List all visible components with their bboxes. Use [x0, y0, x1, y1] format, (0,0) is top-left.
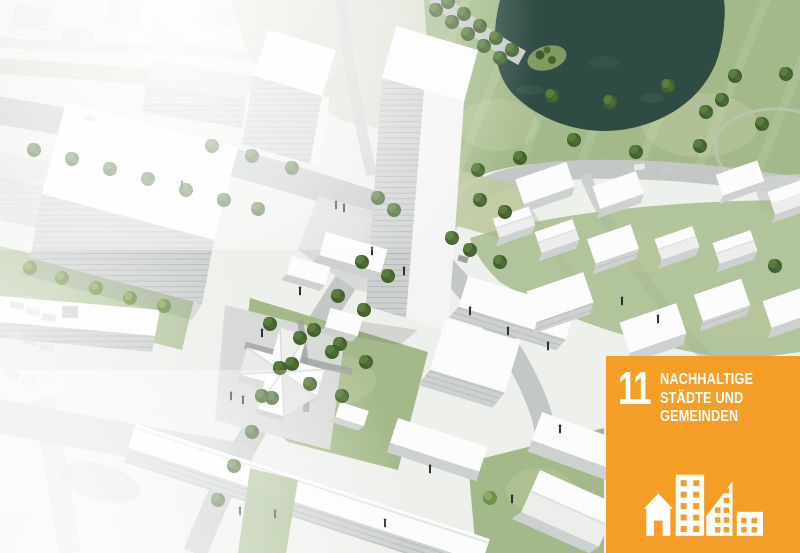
- sdg-goal-number: 11: [618, 368, 650, 408]
- sdg-title-line: GEMEINDEN: [660, 408, 753, 427]
- sdg-title-line: NACHHALTIGE: [660, 371, 753, 390]
- low-building-icon: [737, 512, 763, 536]
- house-icon: [644, 493, 672, 508]
- sdg11-badge-header: 11 NACHHALTIGE STÄDTE UND GEMEINDEN: [606, 356, 800, 427]
- sdg11-badge: 11 NACHHALTIGE STÄDTE UND GEMEINDEN: [606, 356, 800, 553]
- tower-icon: [676, 475, 704, 536]
- sdg11-city-buildings-icon: [643, 468, 763, 536]
- sdg-title-line: STÄDTE UND: [660, 390, 753, 409]
- sdg-goal-title: NACHHALTIGE STÄDTE UND GEMEINDEN: [660, 368, 753, 427]
- screenshot-root: 11 NACHHALTIGE STÄDTE UND GEMEINDEN: [0, 0, 800, 553]
